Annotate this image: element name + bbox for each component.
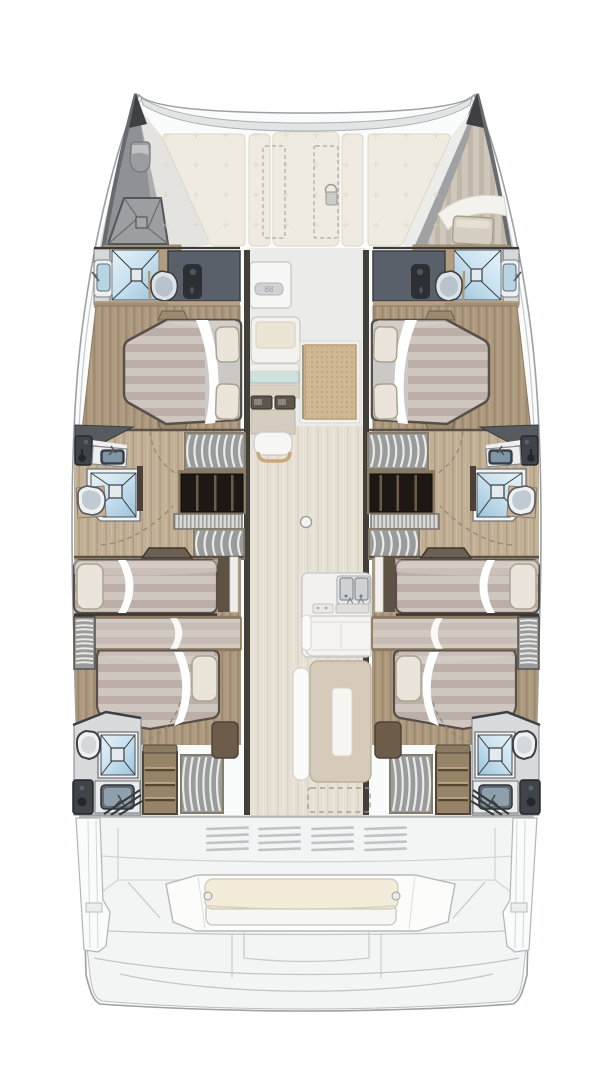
svg-text:88: 88 <box>265 285 274 294</box>
